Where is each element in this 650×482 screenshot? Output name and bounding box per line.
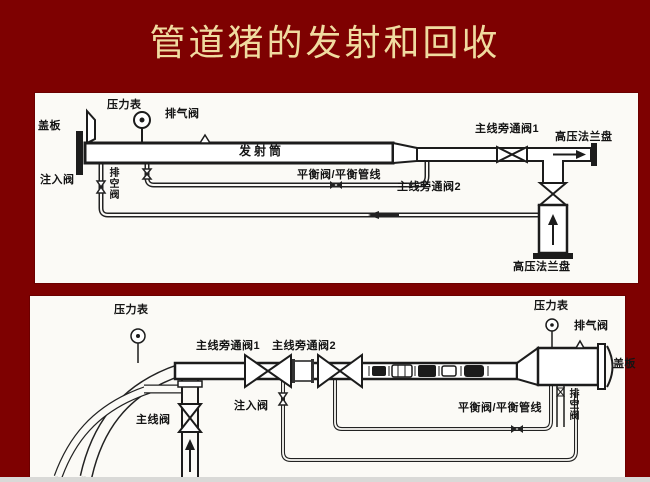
balance-line-pipe: [147, 162, 427, 185]
main-bypass-valve-2-icon: [318, 355, 362, 387]
pressure-gauge-left-icon: [131, 329, 145, 363]
label-cover-plate: 盖板: [613, 358, 636, 370]
label-pressure-gauge-right: 压力表: [534, 300, 569, 312]
flanged-spool: [292, 359, 314, 383]
injection-valve-icon: [279, 393, 287, 405]
label-launcher-barrel: 发射筒: [239, 145, 284, 158]
receiver-drawing: [30, 296, 625, 477]
hp-flange-bottom-icon: [533, 253, 573, 259]
label-hp-flange-bottom: 高压法兰盘: [513, 261, 571, 273]
incoming-secondary-pipe-bend: [58, 389, 184, 477]
bottom-strip: [0, 477, 650, 482]
flow-arrow-left-icon: [368, 211, 399, 219]
expander-shape: [517, 348, 538, 385]
pressure-gauge-right-icon: [546, 319, 558, 348]
label-balance-valve-line: 平衡阀/平衡管线: [458, 402, 542, 414]
injection-valve-icon: [97, 181, 105, 193]
drain-line-pipe: [283, 379, 576, 460]
receiver-diagram-panel: 压力表 主线旁通阀1 主线旁通阀2 压力表 排气阀 盖板 主线阀 注入阀 平衡阀…: [30, 296, 625, 477]
reducer-shape: [393, 143, 417, 163]
launcher-diagram-panel: 盖板 压力表 排气阀 发射筒 主线旁通阀1 高压法兰盘 注入阀 排空阀 平衡阀/…: [35, 93, 638, 283]
label-main-bypass-valve-1: 主线旁通阀1: [196, 340, 260, 352]
launcher-drawing: [35, 93, 638, 283]
balance-valve-icon: [330, 181, 342, 189]
label-vent-valve: 排气阀: [165, 108, 200, 120]
tee-stub: [544, 160, 562, 183]
label-main-line-valve: 主线阀: [136, 414, 171, 426]
cover-plate-icon: [87, 111, 95, 143]
label-injection-valve: 注入阀: [40, 174, 75, 186]
label-pressure-gauge: 压力表: [107, 99, 142, 111]
label-vent-valve: 排气阀: [574, 320, 609, 332]
receiver-barrel-shape: [538, 348, 598, 385]
main-bypass-valve-2-icon: [540, 183, 566, 205]
main-bypass-valve-1-icon: [245, 355, 291, 387]
label-main-bypass-valve-1: 主线旁通阀1: [475, 123, 539, 135]
label-cover-plate: 盖板: [38, 120, 61, 132]
vent-valve-icon: [576, 341, 584, 348]
label-balance-valve-line: 平衡阀/平衡管线: [297, 169, 381, 181]
balance-valve-icon: [511, 425, 523, 433]
receiver-drain-pipe: [557, 385, 564, 427]
closure-flange-icon: [76, 131, 83, 175]
vent-valve-icon: [200, 135, 210, 143]
page-title: 管道猪的发射和回收: [0, 14, 650, 66]
label-drain-valve: 排空阀: [107, 167, 117, 200]
label-drain-valve: 排空阀: [567, 388, 577, 421]
label-pressure-gauge-left: 压力表: [114, 304, 149, 316]
closure-flange-icon: [598, 344, 605, 389]
label-main-bypass-valve-2: 主线旁通阀2: [397, 181, 461, 193]
drain-valve-icon: [143, 169, 151, 179]
pressure-gauge-icon: [134, 112, 150, 143]
label-hp-flange-top: 高压法兰盘: [555, 131, 613, 143]
slide: 管道猪的发射和回收: [0, 0, 650, 482]
hp-flange-top-icon: [591, 143, 597, 166]
label-injection-valve: 注入阀: [234, 400, 269, 412]
label-main-bypass-valve-2: 主线旁通阀2: [272, 340, 336, 352]
cover-plate-icon: [607, 346, 613, 387]
